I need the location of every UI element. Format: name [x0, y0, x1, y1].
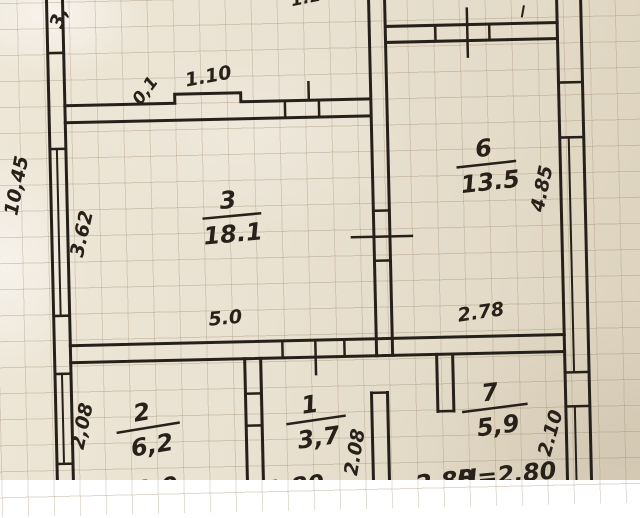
dim-room1-width: 1.80 — [264, 469, 326, 480]
dim-room2-width: 3.0 — [134, 471, 180, 480]
room-area: 5,9 — [475, 409, 521, 442]
dim-left-window: 3.62 — [66, 209, 98, 260]
window-glass-line — [575, 406, 577, 480]
wall-line — [70, 334, 564, 345]
dim-room1-depth: 2.08 — [340, 427, 370, 477]
wall-line — [71, 351, 565, 362]
room-7-label: 7 5,9 — [458, 374, 531, 444]
central-wall — [346, 0, 414, 356]
dimension-labels-layer: 10,45 3.62 3, 0,1 1.10 1.10 5.0 2.78 4.8… — [0, 0, 570, 480]
wall-line — [437, 354, 438, 411]
room-number: 2 — [131, 397, 152, 427]
walls-layer — [46, 0, 591, 480]
room-2-label: 2 6,2 — [112, 393, 185, 465]
room-number: 3 — [218, 186, 237, 215]
wall-line — [245, 359, 248, 480]
pen-tick — [522, 6, 524, 16]
window-tick — [560, 137, 584, 138]
room-area: 3,7 — [296, 421, 342, 455]
dim-top-left-partial: 3, — [46, 5, 73, 31]
window-tick — [566, 406, 590, 407]
room-6-label: 6 13.5 — [453, 131, 521, 199]
dim-right-window: 4.85 — [526, 163, 557, 214]
room-number: 6 — [474, 134, 494, 164]
wall-line — [65, 90, 369, 106]
room1-room7-wall-lower — [371, 393, 389, 480]
room3-top-wall — [64, 81, 369, 123]
room-labels-layer: 3 18.1 6 13.5 2 6,2 1 3,7 7 — [106, 131, 532, 465]
room1-room7-wall-upper — [437, 354, 454, 411]
window-glass-line — [62, 374, 64, 464]
dim-top-mid-partial: 1.10 — [289, 0, 334, 11]
room6-top-window-wall — [387, 6, 558, 59]
wall-line — [261, 358, 264, 480]
dim-mid-right: 2.78 — [456, 298, 506, 327]
window-glass-line — [569, 137, 574, 372]
dim-room7-depth: 2.10 — [534, 408, 568, 459]
room-area: 18.1 — [202, 217, 264, 250]
dim-mid-left: 5.0 — [208, 306, 244, 331]
wall-line — [580, 0, 591, 480]
plan-group: 3 18.1 6 13.5 2 6,2 1 3,7 7 — [0, 0, 592, 480]
middle-wall — [70, 334, 565, 379]
wall-line — [556, 0, 567, 480]
wall-line — [384, 0, 392, 355]
room-1-label: 1 3,7 — [282, 386, 350, 456]
room2-room1-wall — [245, 358, 264, 480]
right-outer-wall — [556, 0, 591, 480]
room-area: 6,2 — [129, 428, 175, 463]
window-tick — [565, 372, 589, 373]
room-number: 7 — [480, 377, 500, 407]
room-area: 13.5 — [459, 165, 521, 199]
wall-line — [368, 0, 376, 356]
window-tick — [558, 82, 582, 83]
wall-line — [65, 116, 369, 123]
window-glass-line — [57, 149, 61, 316]
floor-plan-drawing: 3 18.1 6 13.5 2 6,2 1 3,7 7 — [0, 0, 640, 480]
wall-line — [388, 39, 558, 43]
room-number: 1 — [300, 390, 321, 420]
dim-left-outer: 10,45 — [0, 154, 33, 217]
dim-step-width: 1.10 — [183, 62, 233, 92]
wall-line — [371, 393, 373, 480]
wall-line — [453, 354, 454, 411]
door-mark — [315, 342, 316, 374]
wall-line — [387, 393, 389, 480]
wall-line — [46, 0, 57, 480]
wall-line — [387, 23, 557, 27]
dim-ceiling-height: H=2.80 — [456, 456, 558, 480]
window-cross-mark — [467, 9, 468, 57]
room-3-label: 3 18.1 — [199, 183, 264, 250]
door-cross-mark — [352, 236, 412, 237]
